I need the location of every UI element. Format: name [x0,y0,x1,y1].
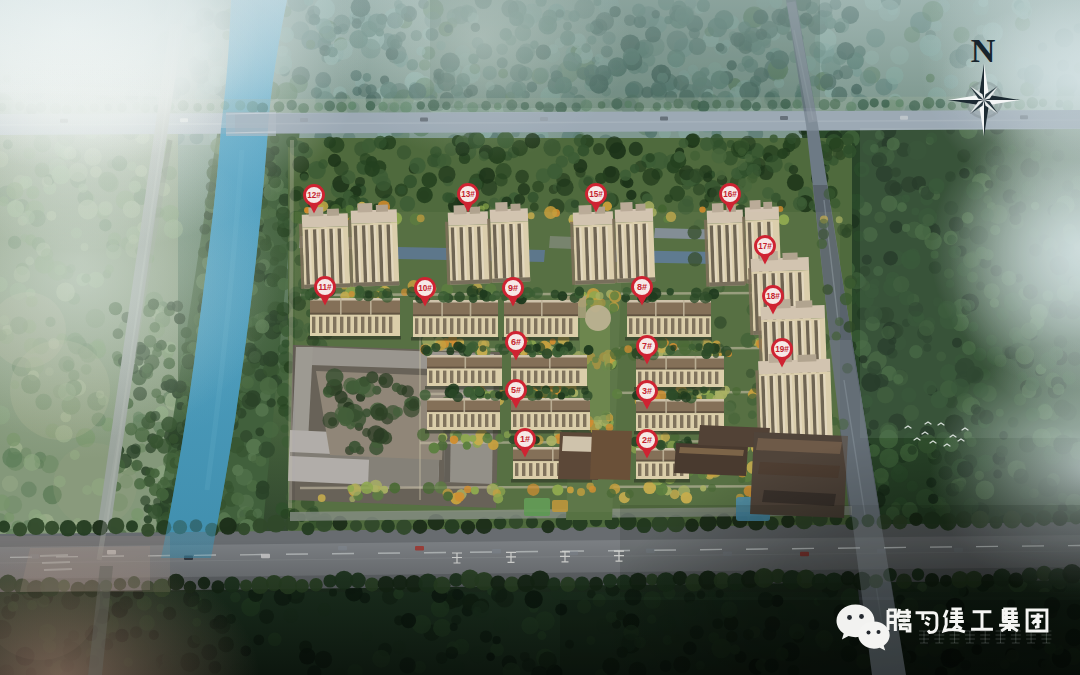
svg-text:13#: 13# [461,190,475,199]
svg-text:10#: 10# [418,284,432,293]
svg-text:5#: 5# [511,385,521,395]
svg-text:17#: 17# [758,242,772,251]
svg-text:12#: 12# [307,191,321,200]
svg-text:16#: 16# [723,190,737,199]
svg-text:18#: 18# [766,292,780,301]
svg-text:19#: 19# [775,345,789,354]
svg-text:N: N [971,32,996,69]
svg-text:9#: 9# [508,283,518,293]
svg-text:7#: 7# [642,341,652,351]
svg-text:3#: 3# [642,386,652,396]
svg-text:11#: 11# [318,283,332,292]
svg-text:6#: 6# [511,337,521,347]
svg-text:8#: 8# [637,282,647,292]
svg-text:2#: 2# [642,435,652,445]
svg-text:15#: 15# [589,190,603,199]
svg-text:1#: 1# [520,434,530,444]
